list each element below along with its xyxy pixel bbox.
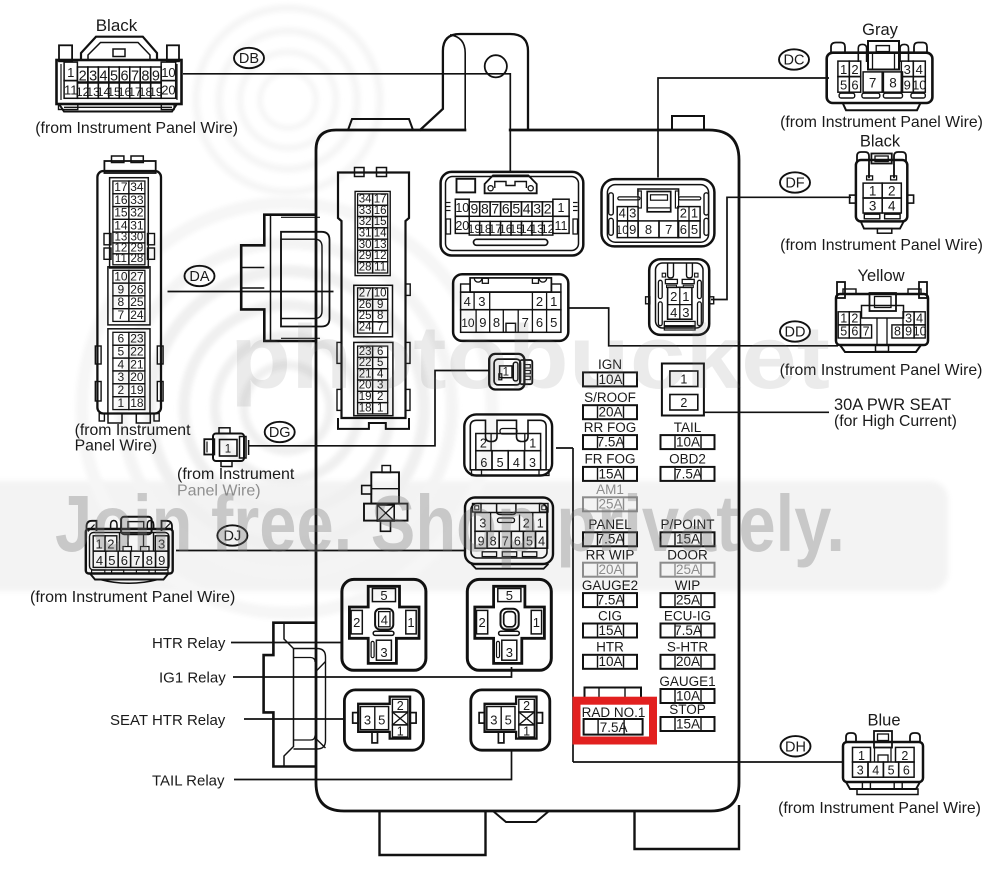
svg-text:1: 1 xyxy=(858,749,865,763)
svg-text:(from Instrument: (from Instrument xyxy=(75,422,191,439)
svg-text:1: 1 xyxy=(682,289,689,304)
svg-text:1: 1 xyxy=(691,206,698,221)
svg-text:1: 1 xyxy=(523,724,530,738)
svg-text:(from Instrument Panel Wire): (from Instrument Panel Wire) xyxy=(30,589,235,606)
svg-text:TAIL Relay: TAIL Relay xyxy=(152,773,225,790)
svg-text:4: 4 xyxy=(100,68,108,84)
svg-text:18: 18 xyxy=(130,396,144,410)
svg-text:DF: DF xyxy=(785,176,804,192)
svg-text:31: 31 xyxy=(359,228,372,240)
svg-text:1: 1 xyxy=(397,724,404,738)
svg-text:16: 16 xyxy=(374,205,387,217)
svg-text:1: 1 xyxy=(558,201,565,215)
svg-text:3: 3 xyxy=(478,294,485,309)
svg-text:5: 5 xyxy=(380,588,387,603)
svg-text:1: 1 xyxy=(118,396,125,410)
svg-text:5: 5 xyxy=(497,456,504,470)
svg-text:TAIL: TAIL xyxy=(674,420,702,435)
svg-text:4: 4 xyxy=(916,62,923,77)
svg-text:Yellow: Yellow xyxy=(857,267,904,285)
svg-text:5: 5 xyxy=(506,588,513,603)
svg-text:GAUGE1: GAUGE1 xyxy=(659,674,715,689)
svg-text:5: 5 xyxy=(691,222,698,237)
svg-text:6: 6 xyxy=(903,764,910,778)
svg-text:10: 10 xyxy=(616,225,629,237)
svg-text:4: 4 xyxy=(916,311,923,325)
svg-text:10: 10 xyxy=(161,65,175,80)
svg-text:3: 3 xyxy=(89,68,97,84)
svg-text:20: 20 xyxy=(161,83,175,98)
svg-text:8: 8 xyxy=(894,324,901,338)
svg-text:9: 9 xyxy=(904,78,911,93)
svg-text:1: 1 xyxy=(529,437,536,451)
svg-text:3: 3 xyxy=(533,201,541,217)
svg-text:28: 28 xyxy=(131,253,144,265)
svg-text:2: 2 xyxy=(851,311,858,325)
svg-text:2: 2 xyxy=(536,294,543,309)
svg-text:6: 6 xyxy=(120,68,128,84)
svg-text:14: 14 xyxy=(374,228,387,240)
svg-text:3: 3 xyxy=(529,456,536,470)
svg-text:1: 1 xyxy=(869,183,877,198)
svg-text:10: 10 xyxy=(913,324,927,338)
svg-text:7: 7 xyxy=(869,76,877,91)
svg-text:2: 2 xyxy=(544,201,552,217)
svg-text:4: 4 xyxy=(464,294,471,309)
svg-text:11: 11 xyxy=(555,219,568,233)
svg-text:RR FOG: RR FOG xyxy=(584,420,637,435)
svg-text:10A: 10A xyxy=(676,435,700,450)
svg-text:8: 8 xyxy=(889,76,897,91)
svg-text:11: 11 xyxy=(374,261,386,273)
svg-text:5: 5 xyxy=(840,78,847,93)
svg-text:OBD2: OBD2 xyxy=(669,452,706,467)
svg-text:4: 4 xyxy=(381,612,388,627)
svg-text:3: 3 xyxy=(904,62,911,77)
svg-text:SEAT HTR Relay: SEAT HTR Relay xyxy=(110,712,226,729)
svg-text:10A: 10A xyxy=(598,654,622,669)
svg-text:10: 10 xyxy=(455,201,469,215)
svg-text:ECU-IG: ECU-IG xyxy=(664,608,711,623)
svg-text:12: 12 xyxy=(374,250,387,262)
svg-text:Blue: Blue xyxy=(867,712,900,730)
svg-text:(from Instrument Panel Wire): (from Instrument Panel Wire) xyxy=(780,114,983,131)
svg-text:2: 2 xyxy=(523,699,530,713)
svg-text:8: 8 xyxy=(481,201,489,217)
svg-text:(from Instrument Panel Wire): (from Instrument Panel Wire) xyxy=(778,800,981,817)
svg-text:2: 2 xyxy=(680,206,687,221)
svg-text:7: 7 xyxy=(118,308,125,322)
svg-text:4: 4 xyxy=(523,201,531,217)
svg-text:3: 3 xyxy=(857,764,864,778)
svg-text:6: 6 xyxy=(851,78,858,93)
svg-text:4: 4 xyxy=(513,456,520,470)
svg-text:9: 9 xyxy=(905,324,912,338)
svg-text:6: 6 xyxy=(851,324,858,338)
svg-text:Black: Black xyxy=(860,133,901,151)
svg-text:Black: Black xyxy=(96,16,138,35)
svg-text:5: 5 xyxy=(110,68,118,84)
svg-text:3: 3 xyxy=(629,206,636,221)
svg-text:13: 13 xyxy=(374,239,387,251)
svg-text:3: 3 xyxy=(869,198,877,213)
svg-text:34: 34 xyxy=(359,194,372,206)
svg-text:15A: 15A xyxy=(598,623,622,638)
svg-text:2: 2 xyxy=(851,62,858,77)
svg-text:15A: 15A xyxy=(676,716,700,731)
svg-text:17: 17 xyxy=(374,194,387,206)
svg-text:WIP: WIP xyxy=(675,578,701,593)
svg-text:24: 24 xyxy=(130,308,144,322)
svg-text:2: 2 xyxy=(670,289,677,304)
svg-text:3: 3 xyxy=(905,311,912,325)
svg-text:2: 2 xyxy=(79,68,87,84)
svg-text:DB: DB xyxy=(239,51,259,67)
svg-text:DC: DC xyxy=(784,53,805,69)
svg-text:DH: DH xyxy=(785,740,806,756)
svg-text:STOP: STOP xyxy=(669,702,706,717)
svg-text:8: 8 xyxy=(645,222,652,237)
svg-text:2: 2 xyxy=(353,615,360,630)
svg-text:CIG: CIG xyxy=(598,608,622,623)
svg-text:DG: DG xyxy=(269,425,291,441)
svg-text:Join free. Shop privately.: Join free. Shop privately. xyxy=(55,479,845,568)
svg-text:12: 12 xyxy=(541,222,555,236)
svg-text:20A: 20A xyxy=(676,654,700,669)
svg-text:(from Instrument Panel Wire): (from Instrument Panel Wire) xyxy=(35,120,238,137)
svg-text:28: 28 xyxy=(359,261,372,273)
svg-text:3: 3 xyxy=(490,713,497,728)
svg-text:4: 4 xyxy=(872,764,879,778)
svg-text:DA: DA xyxy=(189,269,209,285)
svg-text:30A PWR SEAT: 30A PWR SEAT xyxy=(834,396,951,414)
svg-text:9: 9 xyxy=(152,68,160,84)
svg-text:5: 5 xyxy=(505,713,512,728)
svg-text:7.5A: 7.5A xyxy=(597,593,625,608)
svg-text:Panel Wire): Panel Wire) xyxy=(75,438,158,455)
svg-text:7.5A: 7.5A xyxy=(600,720,628,735)
svg-text:15: 15 xyxy=(374,216,387,228)
svg-text:7.5A: 7.5A xyxy=(674,623,702,638)
svg-text:10: 10 xyxy=(912,78,926,93)
svg-text:10: 10 xyxy=(374,288,387,300)
svg-text:9: 9 xyxy=(471,201,479,217)
svg-text:2: 2 xyxy=(901,749,908,763)
svg-text:5: 5 xyxy=(378,713,385,728)
svg-text:1: 1 xyxy=(67,65,74,80)
svg-text:6: 6 xyxy=(680,222,687,237)
svg-text:Gray: Gray xyxy=(862,21,899,39)
svg-text:4: 4 xyxy=(888,198,896,213)
svg-text:9: 9 xyxy=(629,222,636,237)
svg-text:27: 27 xyxy=(359,288,372,300)
svg-text:1: 1 xyxy=(225,444,231,456)
svg-text:7: 7 xyxy=(131,68,139,84)
svg-text:30: 30 xyxy=(359,239,372,251)
svg-text:IG1 Relay: IG1 Relay xyxy=(159,670,226,687)
svg-text:11: 11 xyxy=(115,253,127,265)
svg-text:(for High Current): (for High Current) xyxy=(834,413,957,430)
svg-text:3: 3 xyxy=(380,645,387,660)
svg-text:S-HTR: S-HTR xyxy=(667,640,708,655)
svg-text:2: 2 xyxy=(397,699,404,713)
svg-text:2: 2 xyxy=(478,615,485,630)
svg-text:HTR: HTR xyxy=(596,640,624,655)
svg-text:5: 5 xyxy=(512,201,520,217)
svg-text:2: 2 xyxy=(480,437,487,451)
svg-text:7: 7 xyxy=(863,324,870,338)
svg-text:1: 1 xyxy=(407,615,414,630)
svg-text:8: 8 xyxy=(141,68,149,84)
svg-text:1: 1 xyxy=(840,311,847,325)
svg-text:HTR Relay: HTR Relay xyxy=(152,635,226,652)
svg-text:33: 33 xyxy=(359,205,372,217)
svg-text:7: 7 xyxy=(491,201,499,217)
svg-text:1: 1 xyxy=(840,62,847,77)
svg-text:5: 5 xyxy=(888,764,895,778)
svg-text:29: 29 xyxy=(359,250,372,262)
svg-text:5: 5 xyxy=(840,324,847,338)
svg-text:7.5A: 7.5A xyxy=(597,435,625,450)
svg-text:1: 1 xyxy=(550,294,557,309)
svg-text:(from Instrument Panel Wire): (from Instrument Panel Wire) xyxy=(780,237,983,254)
svg-text:6: 6 xyxy=(502,201,510,217)
svg-text:RAD NO.1: RAD NO.1 xyxy=(582,705,646,720)
svg-text:GAUGE2: GAUGE2 xyxy=(582,578,638,593)
svg-text:7: 7 xyxy=(665,222,672,237)
svg-text:2: 2 xyxy=(888,183,896,198)
svg-text:4: 4 xyxy=(619,206,626,221)
svg-text:25A: 25A xyxy=(676,593,700,608)
svg-text:photobucket: photobucket xyxy=(230,308,830,408)
svg-text:FR FOG: FR FOG xyxy=(585,452,636,467)
svg-text:32: 32 xyxy=(359,216,372,228)
svg-text:1: 1 xyxy=(533,615,540,630)
svg-text:3: 3 xyxy=(506,645,513,660)
svg-text:3: 3 xyxy=(364,713,371,728)
svg-text:6: 6 xyxy=(480,456,487,470)
